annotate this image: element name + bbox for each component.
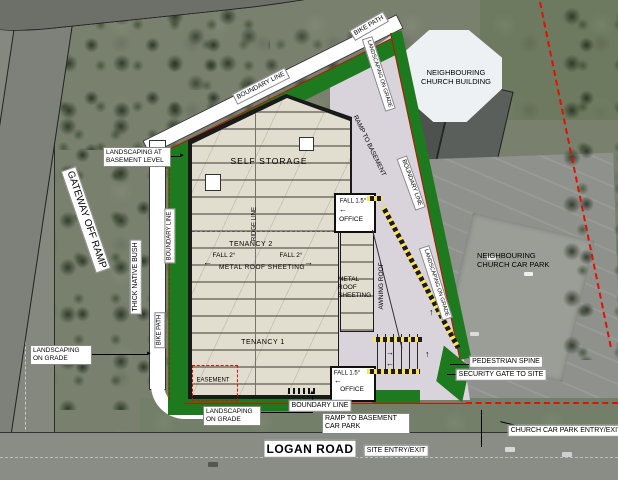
fall-arrow-left-icon: ← [203, 258, 212, 267]
church-car-park-entry-exit-label: CHURCH CAR PARK ENTRY/EXIT [508, 425, 618, 437]
leader-site-entry [481, 410, 482, 447]
fall-arrow-office-bottom-icon: ← [334, 377, 342, 385]
fall-15-top-label: FALL 1.5° [340, 198, 366, 205]
trees-right-edge [556, 0, 618, 360]
office-bottom-label: OFFICE [340, 386, 364, 394]
tenancy-1-label: TENANCY 1 [241, 339, 285, 347]
arrow-landscaping-west-icon: ► [146, 351, 152, 357]
self-storage-label: SELF STORAGE [230, 156, 307, 166]
pedestrian-spine-label: PEDESTRIAN SPINE [469, 356, 543, 368]
road-car [505, 447, 515, 452]
road-car [562, 452, 572, 457]
office-top-label: OFFICE [339, 216, 363, 224]
boundary-line-south-label: BOUNDARY LINE [289, 400, 352, 412]
bike-path-west-label: BIKE PATH [154, 312, 165, 348]
circulation-arrow-right-icon: → [386, 349, 394, 357]
fall-2-left-label: FALL 2° [213, 252, 236, 260]
landscaping-on-grade-west-label: LANDSCAPING ON GRADE [30, 345, 92, 365]
security-gate-to-site-label: SECURITY GATE TO SITE [456, 369, 547, 381]
road-car [208, 462, 218, 467]
arrow-landscaping-south-icon: ▲ [309, 390, 315, 396]
fall-arrow-right-icon: → [304, 258, 313, 267]
landscaping-band-south-east [372, 390, 420, 403]
parked-car [470, 332, 479, 336]
ridge-line-vertical [255, 104, 256, 395]
boundary-red-west [169, 148, 170, 400]
circulation-arrow-left-icon: ← [386, 360, 394, 368]
metal-roof-sheeting-right-label: METAL ROOF SHEETING [338, 276, 378, 299]
landscaping-on-grade-south-label: LANDSCAPING ON GRADE [203, 406, 261, 426]
kerb-hatch-parking-top [373, 337, 422, 342]
arrow-landscaping-basement-icon: ► [179, 153, 185, 159]
neighbouring-church-building-label: NEIGHBOURING CHURCH BUILDING [418, 68, 494, 86]
parked-car [524, 272, 533, 276]
fall-2-right-label: FALL 2° [280, 252, 303, 260]
neighbouring-church-car-park-label: NEIGHBOURING CHURCH CAR PARK [477, 251, 551, 269]
fall-15-bottom-label: FALL 1.5° [334, 370, 360, 377]
circulation-arrow-up-icon: ↑ [425, 350, 430, 359]
ridge-line-label: RIDGE LINE [251, 207, 258, 241]
skylight [205, 174, 221, 191]
boundary-line-west-label: BOUNDARY LINE [164, 209, 175, 264]
ramp-to-basement-car-park-label: RAMP TO BASEMENT CAR PARK [322, 413, 410, 434]
fall-arrow-office-top-icon: ← [339, 206, 347, 214]
ridge-line-dashed [192, 231, 350, 232]
skylight [299, 137, 314, 151]
circulation-arrow-up2-icon: ↑ [429, 308, 434, 317]
leader-landscaping-west [88, 354, 148, 355]
tenancy-2-label: TENANCY 2 [229, 241, 273, 249]
site-entry-exit-label: SITE ENTRY/EXIT [364, 445, 429, 457]
kerb-hatch-parking-bottom [367, 369, 420, 374]
metal-roof-sheeting-main-label: METAL ROOF SHEETING [219, 264, 305, 272]
kerb-hatch-office-top [367, 196, 383, 201]
easement-label: EASEMENT [196, 377, 229, 384]
logan-road-label: LOGAN ROAD [264, 440, 357, 458]
awning-roof-label: AWNING ROOF [378, 262, 386, 309]
thick-native-bush-label: THICK NATIVE BUSH [130, 239, 142, 314]
landscaping-at-basement-level-label: LANDSCAPING AT BASEMENT LEVEL [103, 147, 171, 167]
boundary-red-dashed-south-east [466, 402, 618, 404]
site-plan-screenshot: ► ► ▲ ← → ← ← → ← ↑ ↑ BIKE PATH BOUNDARY… [0, 0, 618, 480]
